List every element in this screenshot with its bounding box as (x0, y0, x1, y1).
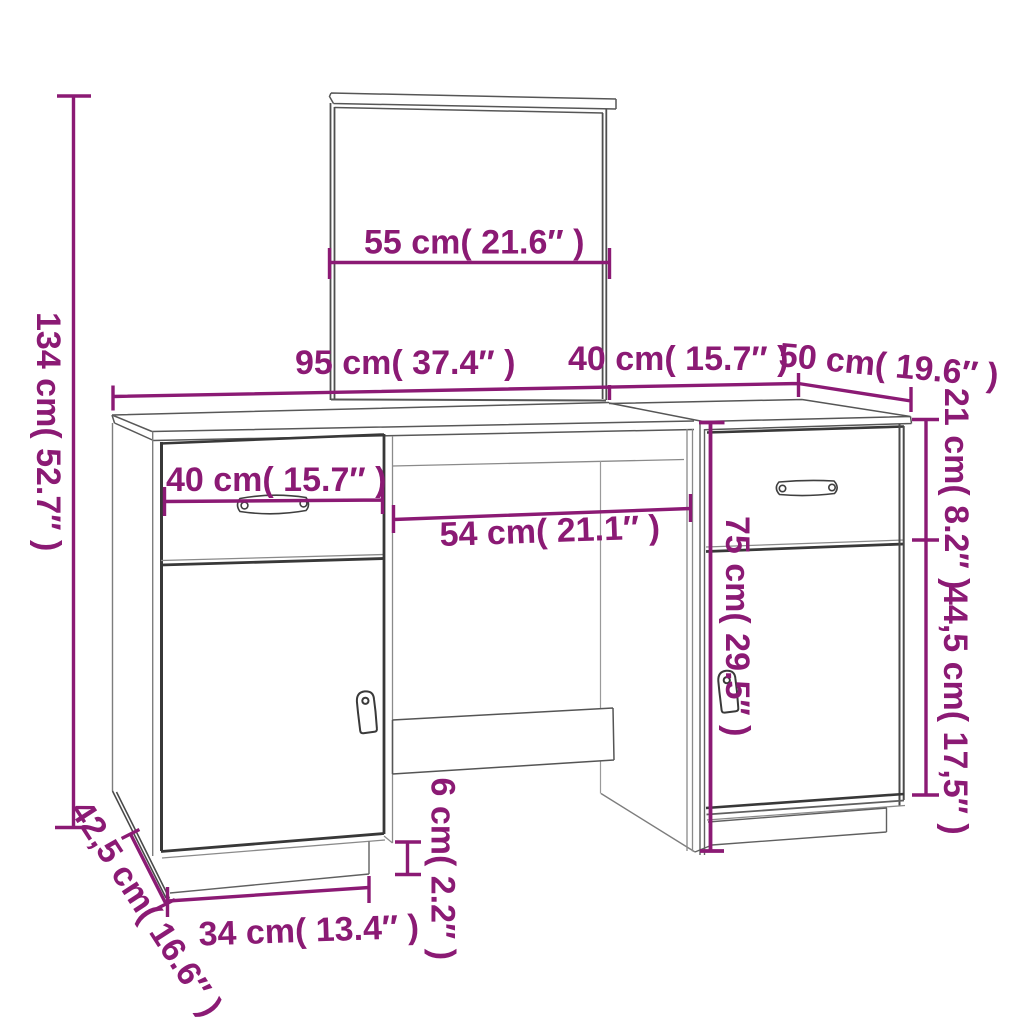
svg-text:54 cm( 21.1″ ): 54 cm( 21.1″ ) (439, 508, 661, 554)
svg-text:40 cm( 15.7″ ): 40 cm( 15.7″ ) (166, 461, 386, 499)
svg-text:134 cm( 52.7″ ): 134 cm( 52.7″ ) (29, 312, 67, 551)
svg-text:95 cm( 37.4″ ): 95 cm( 37.4″ ) (295, 344, 515, 382)
svg-text:21 cm( 8.2″ ): 21 cm( 8.2″ ) (937, 388, 975, 590)
svg-text:40 cm( 15.7″ ): 40 cm( 15.7″ ) (568, 340, 788, 378)
svg-text:34 cm( 13.4″ ): 34 cm( 13.4″ ) (198, 908, 420, 954)
svg-text:6 cm( 2.2″ ): 6 cm( 2.2″ ) (424, 778, 462, 961)
svg-text:75 cm( 29.5″ ): 75 cm( 29.5″ ) (718, 516, 756, 736)
svg-text:55 cm( 21.6″ ): 55 cm( 21.6″ ) (364, 224, 584, 262)
svg-text:42,5 cm( 16.6″ ): 42,5 cm( 16.6″ ) (62, 794, 229, 1023)
svg-text:44,5 cm( 17,5″ ): 44,5 cm( 17,5″ ) (936, 586, 974, 835)
